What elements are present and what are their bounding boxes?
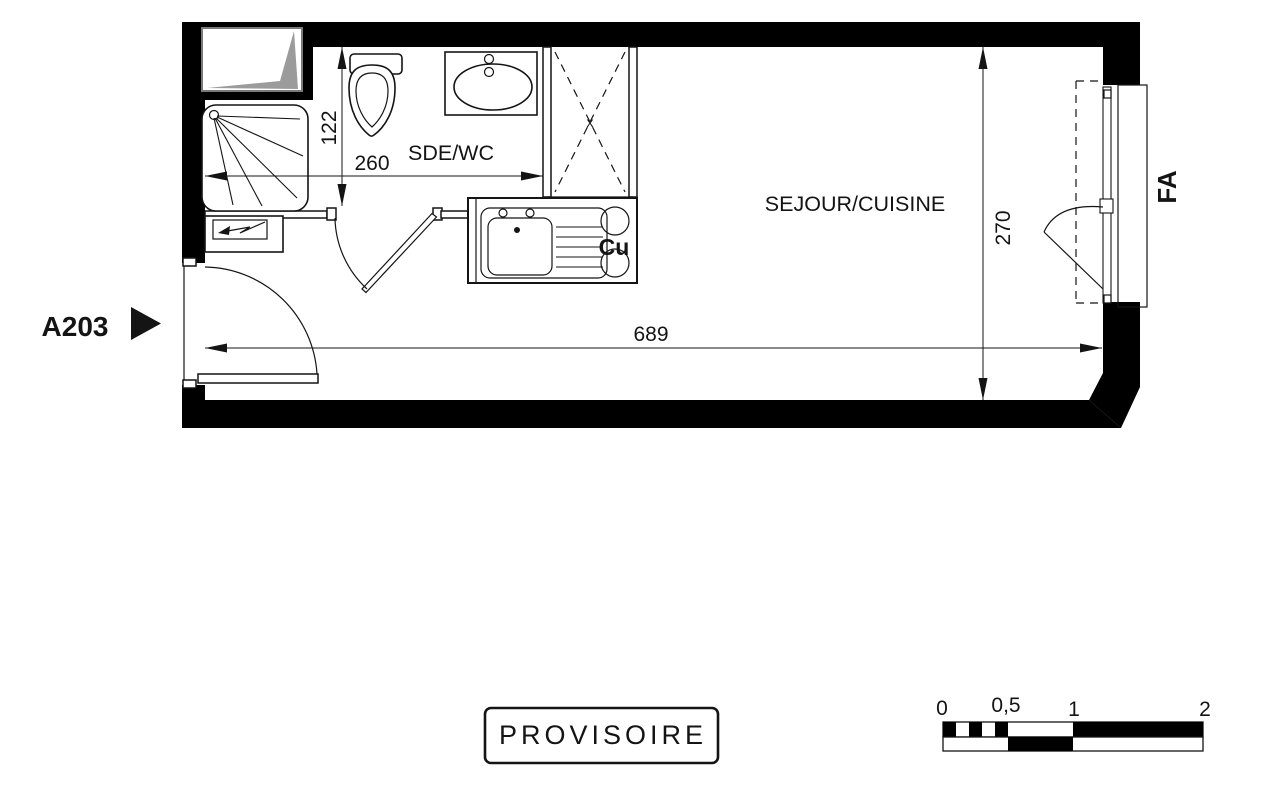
dim-260-value: 260 [354,152,389,175]
closet: x [555,52,625,192]
window-casement-line [1044,232,1103,289]
scale-label-0-5: 0,5 [991,694,1020,717]
radiator [205,216,283,252]
unit-label: A203 [42,311,109,342]
bottom-wall [182,400,1121,428]
scale-bar-bottom-row [943,737,1203,751]
window-fa [1044,81,1147,307]
dimension-122: 122 [318,47,347,206]
toilet [349,54,402,136]
window-sash [1103,87,1111,303]
entry-jamb-bottom [183,380,196,388]
dim-270-value: 270 [992,210,1015,245]
shower-tray [202,105,308,211]
kitchen-unit: Cu [468,198,637,283]
dim-689-arrow-left-icon [205,344,227,353]
living-label: SEJOUR/CUISINE [765,192,945,216]
top-wall [313,22,1140,47]
dim-122-arrow-down-icon [338,184,347,206]
bathroom-label: SDE/WC [408,141,494,165]
window-outer-frame [1118,85,1147,307]
unit-pointer-arrow-icon [131,307,161,340]
entry-door [198,267,318,383]
duct-box [202,28,302,91]
kitchen-unit-label: Cu [599,234,630,260]
window-handle [1100,199,1113,213]
scale-bar: 0 0,5 1 2 [936,694,1211,751]
dim-689-arrow-right-icon [1080,344,1102,353]
stamp-text: PROVISOIRE [499,720,707,750]
right-wall-upper [1103,22,1140,85]
bathroom-door-swing-arc [335,218,367,289]
dimension-689: 689 [205,323,1102,353]
bathroom-door-leaf [362,214,437,293]
dim-122-value: 122 [318,110,341,145]
dim-270-arrow-up-icon [979,47,988,69]
closet-mark-label: x [587,114,594,130]
bathroom-door [335,214,437,293]
toilet-bowl-outer [349,65,395,136]
bathroom-closet-partition [543,47,551,197]
entry-door-swing-arc [205,267,317,374]
unit-label-group: A203 [42,307,161,342]
entry-jamb-top [183,258,196,266]
floor-plan-drawing: x Cu [0,0,1268,800]
entry-door-leaf [198,374,318,383]
dim-270-arrow-down-icon [979,378,988,400]
scale-label-0: 0 [936,697,948,720]
closet-right-partition [629,47,637,197]
shower [202,105,308,211]
floor-plan-page: x Cu [0,0,1268,800]
kitchen-wall-stub [441,211,468,218]
window-fa-label: FA [1152,170,1182,203]
dimension-270: 270 [979,47,1016,400]
radiator-body [205,216,283,252]
window-casement-arc [1044,207,1103,232]
scale-bar-top-row [943,722,1203,737]
vanity-sink [445,52,537,115]
dim-122-arrow-up-icon [338,47,347,69]
provisoire-stamp: PROVISOIRE [485,708,718,763]
scale-label-1: 1 [1068,698,1080,721]
kitchen-sink-drain-icon [514,227,520,233]
scale-label-2: 2 [1199,698,1211,721]
dim-260-arrow-right-icon [521,172,543,181]
dim-689-value: 689 [633,323,668,346]
